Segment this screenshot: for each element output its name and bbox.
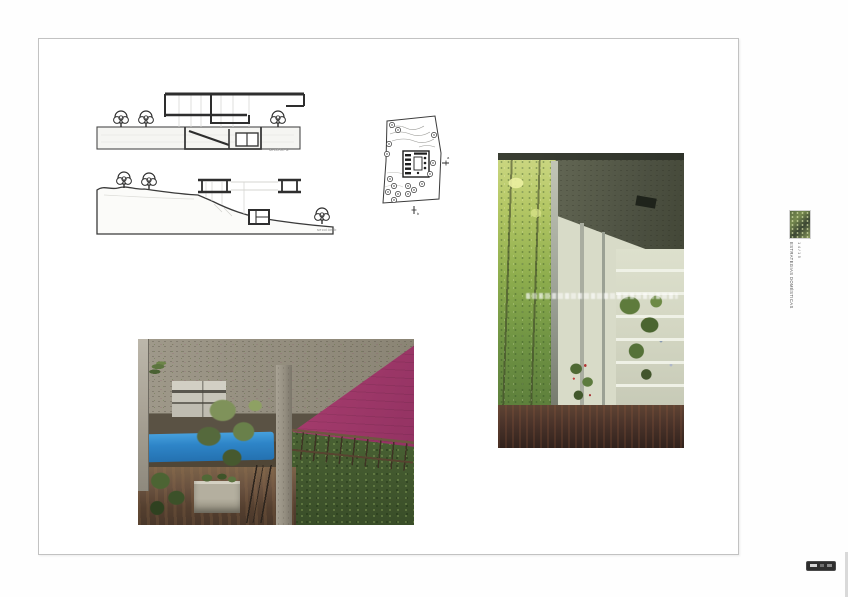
terrace-photo (138, 339, 414, 525)
series-title-vertical: ESTRATEGIAS DOMÉSTICAS (789, 242, 794, 309)
section-drawing-a (89, 87, 317, 167)
toolbar-segment (810, 564, 817, 567)
section-b-caption: sección b (317, 227, 337, 232)
margin-thumbnail (790, 211, 810, 238)
section-a-caption: sección a (269, 147, 289, 152)
site-plan-drawing: a b (377, 113, 451, 217)
plan-marker-bottom-label: b (417, 211, 420, 216)
yucca-plant (142, 353, 174, 387)
concrete-planter (194, 481, 240, 513)
edition-vertical: 14/15 (797, 242, 802, 260)
toolbar-segment (827, 564, 832, 567)
concrete-column (276, 365, 292, 525)
dark-floor (498, 405, 684, 448)
plan-marker-right-label: a (447, 155, 450, 160)
ceiling-edge (498, 153, 684, 160)
section-drawing-b (94, 168, 336, 236)
photo-watermark (526, 293, 678, 299)
viewer-mini-toolbar[interactable] (806, 561, 836, 571)
forest-through-glass (498, 153, 556, 423)
canvas: sección a sección b (0, 0, 848, 597)
sheet-page: sección a sección b (38, 38, 739, 555)
window-mullion (551, 161, 558, 411)
planter-plants (192, 471, 242, 485)
corridor-photo (498, 153, 684, 448)
toolbar-segment (820, 564, 824, 567)
